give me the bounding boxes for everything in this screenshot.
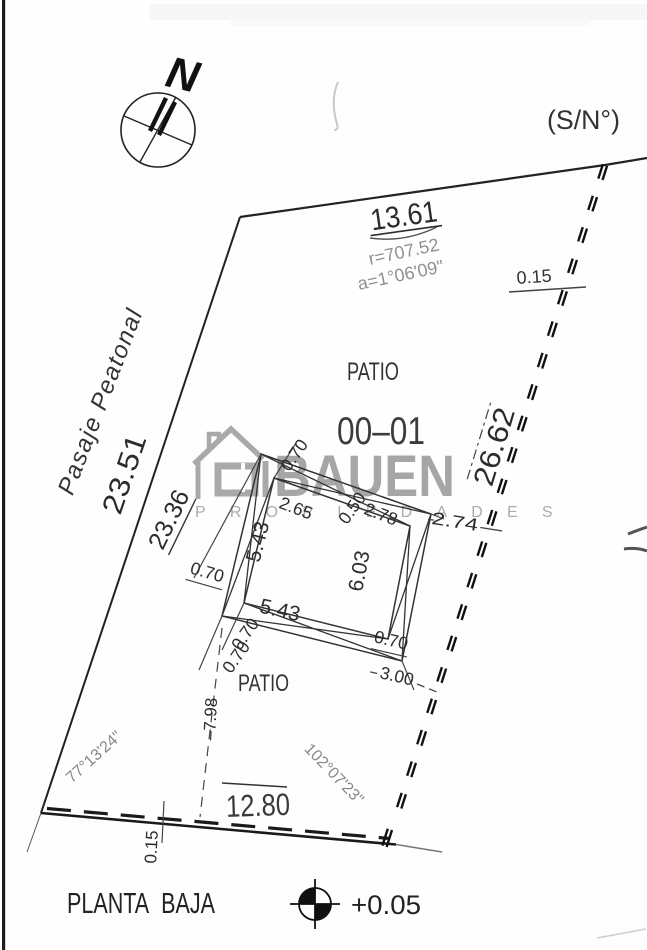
svg-text:12.80: 12.80 xyxy=(225,787,290,824)
svg-text:77°13'24": 77°13'24" xyxy=(63,728,125,786)
svg-text:PATIO: PATIO xyxy=(347,358,399,386)
svg-text:102°07'23": 102°07'23" xyxy=(301,741,367,809)
svg-text:23.51: 23.51 xyxy=(96,430,153,518)
svg-text:N: N xyxy=(162,48,205,103)
svg-text:3.00: 3.00 xyxy=(378,662,416,689)
svg-text:0.15: 0.15 xyxy=(516,266,552,288)
svg-text:–7.98: –7.98 xyxy=(200,697,221,740)
svg-text:(S/N°): (S/N°) xyxy=(547,105,620,135)
svg-text:26.62: 26.62 xyxy=(468,404,522,490)
svg-text:0.70: 0.70 xyxy=(372,626,410,653)
svg-text:PATIO: PATIO xyxy=(238,670,289,697)
svg-text:6.03: 6.03 xyxy=(344,549,374,594)
svg-text:23.36: 23.36 xyxy=(143,485,196,554)
svg-text:+0.05: +0.05 xyxy=(351,890,421,920)
svg-text:5.43: 5.43 xyxy=(242,519,274,564)
svg-text:0.15: 0.15 xyxy=(141,830,162,864)
svg-text:PLANTA BAJA: PLANTA BAJA xyxy=(67,888,215,920)
